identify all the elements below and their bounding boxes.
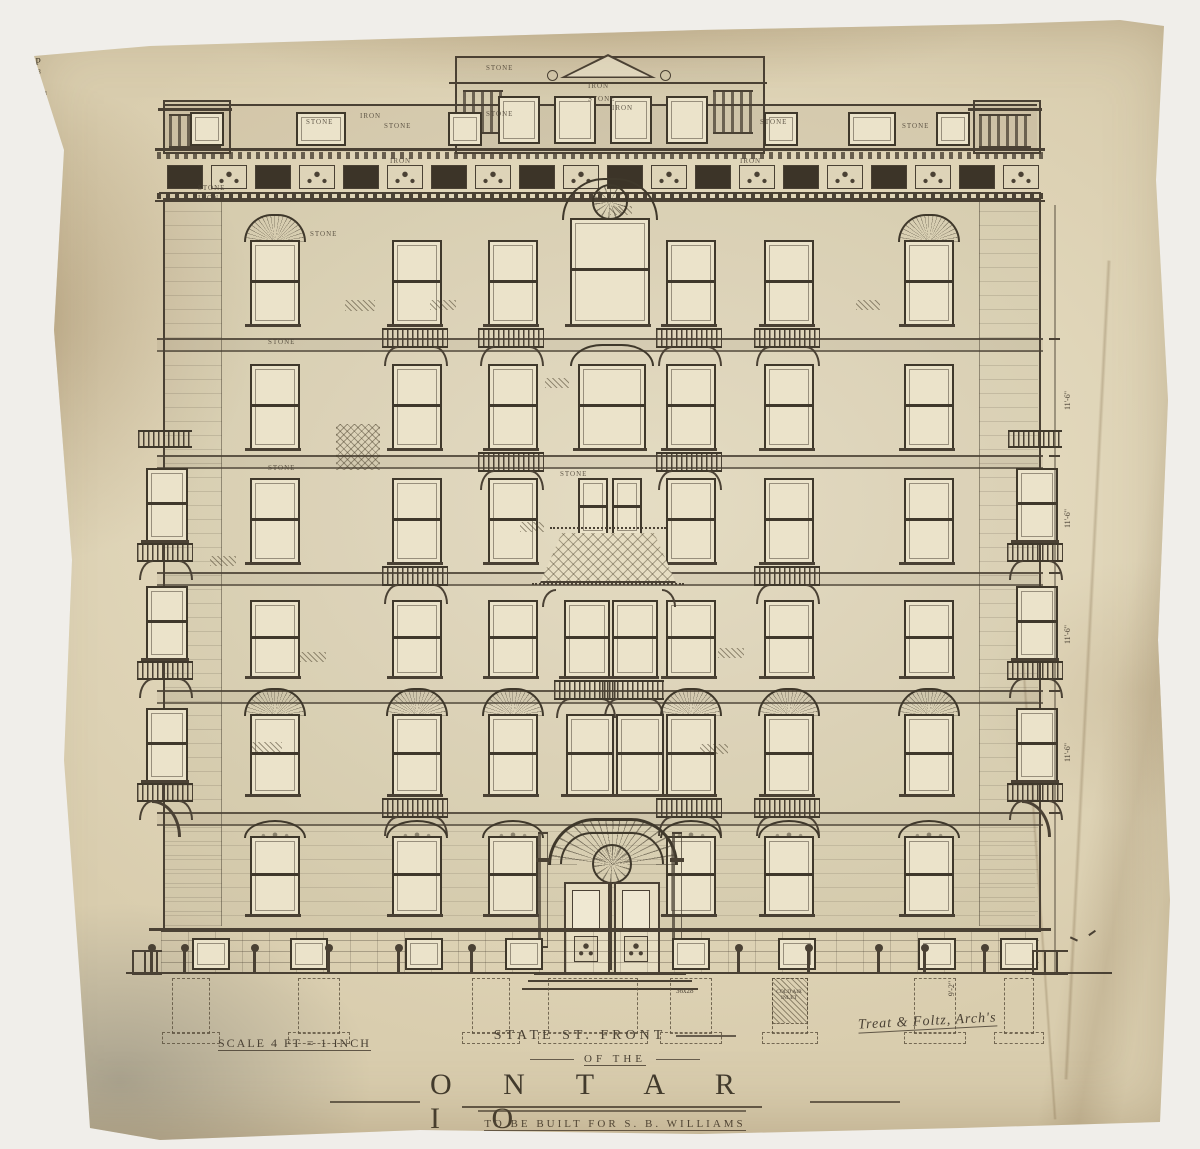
material-label: STONE	[384, 122, 411, 130]
meeting-rail	[766, 518, 812, 521]
window-dim-bottom: 40x42	[0, 61, 46, 68]
corner-pier	[163, 100, 231, 154]
window-dim-top: 32x32	[0, 13, 40, 20]
meeting-rail	[566, 636, 608, 639]
dim-tick	[1049, 812, 1060, 814]
window-dim: 30x28	[0, 14, 34, 21]
material-label: IRON	[198, 194, 219, 202]
entrance-arch-inner	[560, 832, 664, 864]
window	[146, 708, 188, 782]
top-sash	[492, 838, 534, 872]
window-dim-bottom: 40x62	[0, 63, 46, 70]
foundation-dashed	[548, 978, 638, 1034]
tick-mark	[1088, 930, 1095, 936]
window-mark: P	[0, 57, 76, 68]
entrance-door-leaf	[564, 882, 610, 974]
meeting-rail	[568, 752, 612, 755]
window-dim-top: 40x38	[0, 16, 42, 23]
window-dim-bottom: 36x38	[0, 69, 46, 76]
cornice-modillions	[157, 152, 1043, 159]
material-label: STONE	[486, 64, 513, 72]
brick-hatch	[210, 556, 236, 566]
window-sill	[483, 562, 539, 568]
title-line-1: STATE ST. FRONT	[420, 1028, 810, 1044]
window-dim-top: 32x38	[0, 16, 42, 23]
pediment-scroll	[660, 70, 671, 81]
window-mark: D.T.	[0, 3, 34, 10]
top-sash	[150, 710, 184, 742]
iron-balcony	[478, 328, 544, 348]
window	[392, 240, 442, 326]
canopy-eave	[532, 583, 684, 590]
window-dim-top: 40x38	[0, 16, 42, 23]
window-arch-hood	[758, 688, 820, 716]
window-mark: P	[0, 42, 46, 53]
balcony-bracket	[756, 584, 770, 604]
oriel-balcony	[1007, 543, 1063, 562]
material-label: IRON	[612, 104, 633, 112]
balcony-bracket	[756, 816, 770, 836]
sidewalk-bollard	[150, 950, 153, 974]
belt-course	[157, 455, 1043, 469]
window-dim-top: 36x42	[0, 15, 42, 22]
door-lower-panel	[574, 936, 598, 962]
sidewalk-bollard	[983, 950, 986, 974]
material-label: STONE	[310, 230, 337, 238]
window-dim: 30x28	[0, 14, 34, 21]
base-line	[149, 928, 1051, 931]
entrance-arch-outer	[548, 818, 678, 865]
iron-balcony	[382, 328, 448, 348]
window-sill	[483, 324, 539, 330]
window-dim-top: 36x38	[0, 16, 42, 23]
window	[904, 364, 954, 450]
meeting-rail	[148, 502, 186, 505]
top-sash	[254, 366, 296, 403]
window-sill	[387, 324, 443, 330]
window-note: ONYX MARBLE	[0, 3, 40, 10]
oriel-corner-bracket	[1022, 800, 1051, 837]
meeting-rail	[148, 742, 186, 745]
window	[904, 714, 954, 796]
window	[564, 600, 610, 678]
iron-balcony	[754, 328, 820, 348]
attic-window	[936, 112, 970, 146]
basement-window	[505, 938, 543, 970]
material-label: STONE	[268, 338, 295, 346]
top-sash	[616, 602, 654, 635]
top-sash	[254, 242, 296, 279]
balcony-bracket	[650, 698, 664, 718]
window-dim-bottom: 40x42	[0, 69, 46, 76]
paper-crease	[1017, 600, 1057, 1119]
meeting-rail	[394, 752, 440, 755]
frieze-panel	[211, 165, 247, 189]
oriel-bracket	[139, 560, 153, 580]
rule	[810, 1101, 900, 1103]
pediment-inner	[560, 54, 656, 78]
brick-hatch	[700, 744, 728, 754]
area-fence	[132, 950, 162, 975]
title-line-2: OF THE	[430, 1053, 800, 1066]
attic-window	[448, 112, 482, 146]
window-sill	[661, 914, 717, 920]
window-dim-bottom: 33x38	[0, 69, 46, 76]
window-dim-top: 32x46	[0, 16, 42, 23]
window-dim: 26x16	[0, 18, 30, 25]
window-dim-bottom: 36x42	[0, 61, 46, 68]
window	[146, 586, 188, 660]
window-dim-top: 36x32	[0, 16, 42, 23]
iron-balcony	[478, 452, 544, 472]
facade-wall	[163, 198, 1041, 932]
window-mark: D.T.	[0, 3, 34, 10]
brick-hatch	[430, 300, 456, 310]
entrance-step	[522, 988, 698, 990]
window-mark: D.T.	[0, 3, 34, 10]
meeting-rail	[252, 518, 298, 521]
window-dim: 32x16	[0, 18, 30, 25]
oriel-canopy-rail	[138, 430, 192, 448]
window	[612, 478, 642, 536]
meeting-rail	[490, 518, 536, 521]
meeting-rail	[490, 873, 536, 876]
window-mark: P	[0, 42, 46, 53]
window-dim: D.T.	[0, 18, 44, 25]
window-dim-bottom: 36x62	[0, 63, 46, 70]
basement-window	[192, 938, 230, 970]
foundation-pad-dashed	[462, 1032, 520, 1044]
foundation-note: 36x28	[676, 988, 694, 995]
foundation-pad-dashed	[904, 1032, 966, 1044]
foundation-dashed	[172, 978, 210, 1034]
window-dim: 36x28	[0, 14, 34, 21]
foundation-dashed	[472, 978, 510, 1034]
window-sill	[1011, 540, 1059, 546]
building-name-underline-2	[478, 1110, 746, 1112]
window-sill	[573, 448, 647, 454]
top-sash	[150, 588, 184, 620]
sidewalk-bollard	[807, 950, 810, 974]
window	[666, 478, 716, 564]
frieze-panel	[299, 165, 335, 189]
window-dim-bottom: 36x42	[0, 69, 46, 76]
oriel-balcony	[1007, 661, 1063, 680]
basement-window	[918, 938, 956, 970]
window-dim-top: 40x46	[0, 16, 42, 23]
window-dim-top: 40x46	[0, 16, 42, 23]
frieze-panel	[695, 165, 731, 189]
window-mark: P	[0, 45, 46, 56]
frieze-panel	[871, 165, 907, 189]
sidewalk-line	[126, 972, 1112, 974]
belt-course	[157, 690, 1043, 704]
window-arch-hood	[244, 214, 306, 242]
meeting-rail	[766, 873, 812, 876]
material-label: STONE	[486, 110, 513, 118]
window-dim: 18x20	[0, 28, 38, 35]
window-dim-top: 48 40	[0, 15, 42, 22]
window-sill	[483, 914, 539, 920]
top-sash	[908, 366, 950, 403]
window-mark: P	[0, 43, 44, 54]
entrance-pilaster	[672, 832, 682, 948]
window	[904, 478, 954, 564]
window-dim-top: 16+26	[0, 11, 22, 18]
frieze-panel	[255, 165, 291, 189]
meeting-rail	[906, 752, 952, 755]
window-sill	[661, 324, 717, 330]
meeting-rail	[580, 404, 644, 407]
canopy-bracket	[662, 589, 676, 607]
window-dim-top: 40x38	[0, 16, 42, 23]
meeting-rail	[906, 518, 952, 521]
top-sash	[908, 242, 950, 279]
meeting-rail	[618, 752, 662, 755]
basement-band	[161, 930, 1039, 974]
parapet-window	[554, 96, 596, 144]
top-sash	[492, 366, 534, 403]
iron-balcony	[754, 566, 820, 586]
meeting-rail	[906, 636, 952, 639]
window	[250, 364, 300, 450]
window-mark: P	[0, 41, 46, 52]
window-dim-top: 32x42	[0, 15, 42, 22]
window-dim-top: 32x42	[0, 16, 42, 23]
window-mark: D.T.	[0, 3, 34, 10]
window-dim: 36x16	[0, 18, 30, 25]
window-mark: P	[0, 42, 46, 53]
balcony-bracket	[384, 584, 398, 604]
window-mark: P	[0, 43, 46, 54]
window-dim-bottom: 36x46	[0, 65, 46, 72]
window-sill	[1011, 780, 1059, 786]
balcony-bracket	[434, 346, 448, 366]
meeting-rail	[490, 636, 536, 639]
parapet-baluster	[713, 90, 753, 134]
window-dim: 30x16	[0, 18, 30, 25]
window-dim-bottom: 40x46	[0, 65, 46, 72]
oriel-bracket	[179, 560, 193, 580]
oriel-bracket	[1049, 560, 1063, 580]
window-mark: P	[0, 41, 42, 52]
top-sash	[582, 366, 642, 403]
sidewalk-bollard	[923, 950, 926, 974]
dim-label: 11'-6"	[1063, 743, 1072, 762]
top-sash	[616, 480, 638, 504]
window-dim-top: 32x32	[0, 13, 40, 20]
window-dim-bottom: 40x28	[0, 69, 46, 76]
balcony-bracket	[480, 470, 494, 490]
top-sash	[908, 838, 950, 872]
meeting-rail	[490, 280, 536, 283]
window-dim-bottom: 44x62	[0, 63, 46, 70]
oriel-canopy-rail	[1008, 430, 1062, 448]
top-sash	[254, 602, 296, 635]
attic-window	[296, 112, 346, 146]
top-sash	[670, 366, 712, 403]
cold-air-inlet	[772, 978, 808, 1024]
meeting-rail	[394, 404, 440, 407]
window-segmental-hood	[898, 820, 960, 838]
window-dim-top: 46x28	[0, 16, 42, 23]
window-sill	[607, 534, 643, 540]
window-sill	[387, 676, 443, 682]
window	[904, 240, 954, 326]
window-dim-bottom: 40x38	[0, 69, 46, 76]
window	[666, 714, 716, 796]
frieze-panel	[1003, 165, 1039, 189]
balcony-bracket	[434, 584, 448, 604]
pediment	[560, 54, 656, 78]
material-label: STONE	[268, 464, 295, 472]
top-sash	[492, 242, 534, 279]
rule	[649, 1143, 689, 1145]
window-dim-bottom: 36x32	[0, 69, 46, 76]
window	[488, 836, 538, 916]
window-dim: 30x30	[0, 14, 34, 21]
window-dim: 36x28	[0, 14, 34, 21]
cornice-bed-line	[155, 200, 1045, 202]
window	[392, 836, 442, 916]
top-sash	[768, 716, 810, 751]
window-dim-top: 33x38	[0, 16, 42, 23]
top-sash	[254, 838, 296, 872]
meeting-rail	[614, 636, 656, 639]
window-dim-top: 36x28	[0, 16, 42, 23]
pediment-scroll	[547, 70, 558, 81]
window-dim: 18x20	[0, 28, 38, 35]
window-dim-bottom: 40x42	[0, 69, 46, 76]
window-sill	[1011, 658, 1059, 664]
material-label: IRON	[390, 157, 411, 165]
window-mark: P	[0, 43, 46, 54]
entrance-door-leaf	[614, 882, 660, 974]
iron-balcony	[656, 798, 722, 818]
top-sash	[670, 242, 712, 279]
material-label: STONE	[306, 118, 333, 126]
iron-balcony	[554, 680, 616, 700]
window-dim-top: 40x28	[0, 16, 42, 23]
meeting-rail	[490, 404, 536, 407]
cold-air-label: COLD AIR INLET	[770, 990, 808, 1002]
window	[392, 600, 442, 678]
parapet-window	[666, 96, 708, 144]
window-dim-bottom: 32x46	[0, 65, 46, 72]
window	[250, 240, 300, 326]
meeting-rail	[906, 404, 952, 407]
window-sill	[661, 448, 717, 454]
top-sash	[396, 602, 438, 635]
window-mark: P	[0, 41, 46, 52]
attic-window	[190, 112, 224, 146]
window-dim-top: 40x62	[0, 15, 42, 22]
window	[764, 600, 814, 678]
foundation-pad-dashed	[762, 1032, 818, 1044]
window-mark: P	[0, 39, 38, 50]
window-mark: D.T.	[0, 6, 38, 15]
window-dim-top: 36x32	[0, 16, 42, 23]
meeting-rail	[766, 636, 812, 639]
entrance-capital	[670, 858, 684, 862]
meeting-rail	[1018, 502, 1056, 505]
meeting-rail	[766, 752, 812, 755]
top-sash	[908, 716, 950, 751]
window	[904, 600, 954, 678]
top-sash	[582, 480, 604, 504]
frieze-panel	[739, 165, 775, 189]
window-sill	[661, 562, 717, 568]
window-mark: P	[0, 45, 46, 56]
brick-hatch	[718, 648, 744, 658]
window-dim-top: 40x62	[0, 15, 42, 22]
window	[764, 714, 814, 796]
window	[250, 600, 300, 678]
dim-label: 11'-6"	[1063, 391, 1072, 410]
window-sill	[245, 794, 301, 800]
top-sash	[150, 470, 184, 502]
belt-course	[157, 572, 1043, 586]
window-segmental-hood	[386, 820, 448, 838]
window-dim-bottom: 36x28	[0, 69, 46, 76]
attic-window	[848, 112, 896, 146]
window-dim-bottom: 32x42	[0, 69, 46, 76]
oriel-balcony	[1007, 783, 1063, 802]
sidewalk-bollard	[470, 950, 473, 974]
corner-pier-cap	[968, 108, 1042, 111]
frieze-panel	[431, 165, 467, 189]
oriel-bracket	[139, 678, 153, 698]
window-sill	[245, 448, 301, 454]
window-sill	[565, 324, 651, 330]
window-mark: P	[0, 42, 46, 53]
window-mark: P	[0, 45, 46, 56]
window-sill	[899, 562, 955, 568]
oriel-corner-bracket	[152, 800, 181, 837]
meeting-rail	[252, 752, 298, 755]
window-dim-bottom: 40x62	[0, 63, 46, 70]
window-dim-bottom: 32x58	[0, 65, 44, 72]
window-sill	[559, 676, 611, 682]
balcony-bracket	[384, 816, 398, 836]
sidewalk-bollard	[877, 950, 880, 974]
window	[764, 240, 814, 326]
elevation-drawing: D.T.36x20D.T.18x20D.T.18x20D.T.36x2036x1…	[0, 0, 1200, 1149]
cornice-dentil-strip	[157, 193, 1043, 199]
window	[616, 714, 664, 796]
window-mark: P	[0, 45, 46, 56]
window-mark: P	[0, 45, 46, 56]
building-name-line: O N T A R I O	[330, 1068, 900, 1136]
basement-window	[405, 938, 443, 970]
basement-window	[778, 938, 816, 970]
dim-tick	[1049, 690, 1060, 692]
window-arch-hood	[244, 688, 306, 716]
sidewalk-bollard	[737, 950, 740, 974]
top-sash	[1020, 470, 1054, 502]
meeting-rail	[394, 280, 440, 283]
top-sash	[492, 716, 534, 751]
top-sash	[570, 716, 610, 751]
meeting-rail	[252, 873, 298, 876]
balcony-bracket	[658, 470, 672, 490]
meeting-rail	[668, 404, 714, 407]
window-dim-bottom: 33x42	[0, 61, 46, 68]
window-mark: P	[0, 45, 46, 56]
oriel-bracket	[1049, 678, 1063, 698]
window-dim: 36x20	[0, 28, 38, 35]
tracery-rosette	[592, 184, 628, 220]
